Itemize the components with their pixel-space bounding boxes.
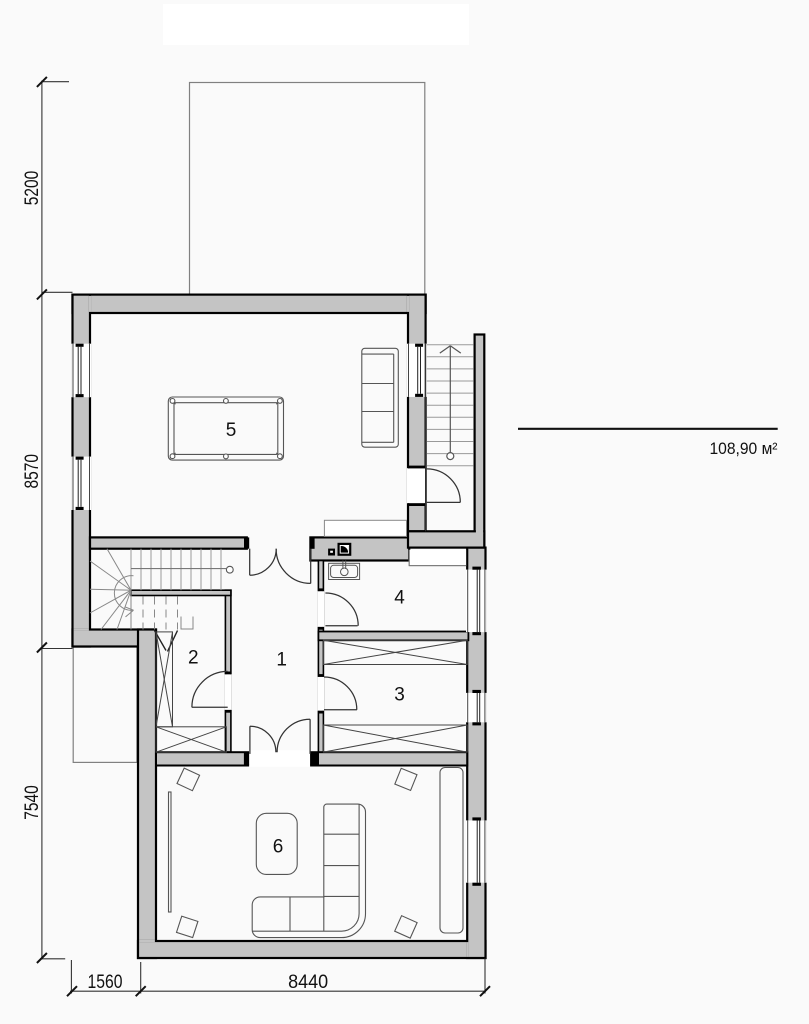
svg-text:4: 4: [394, 588, 405, 609]
svg-text:6: 6: [273, 836, 284, 857]
svg-text:5200: 5200: [21, 171, 43, 206]
svg-text:8570: 8570: [21, 454, 43, 489]
svg-text:7540: 7540: [21, 785, 43, 820]
svg-text:2: 2: [188, 647, 199, 668]
svg-text:8440: 8440: [288, 971, 328, 993]
svg-text:1560: 1560: [88, 971, 123, 993]
svg-text:5: 5: [226, 420, 237, 441]
svg-text:3: 3: [394, 685, 405, 706]
svg-text:108,90 м²: 108,90 м²: [710, 440, 779, 458]
svg-text:1: 1: [276, 650, 287, 671]
